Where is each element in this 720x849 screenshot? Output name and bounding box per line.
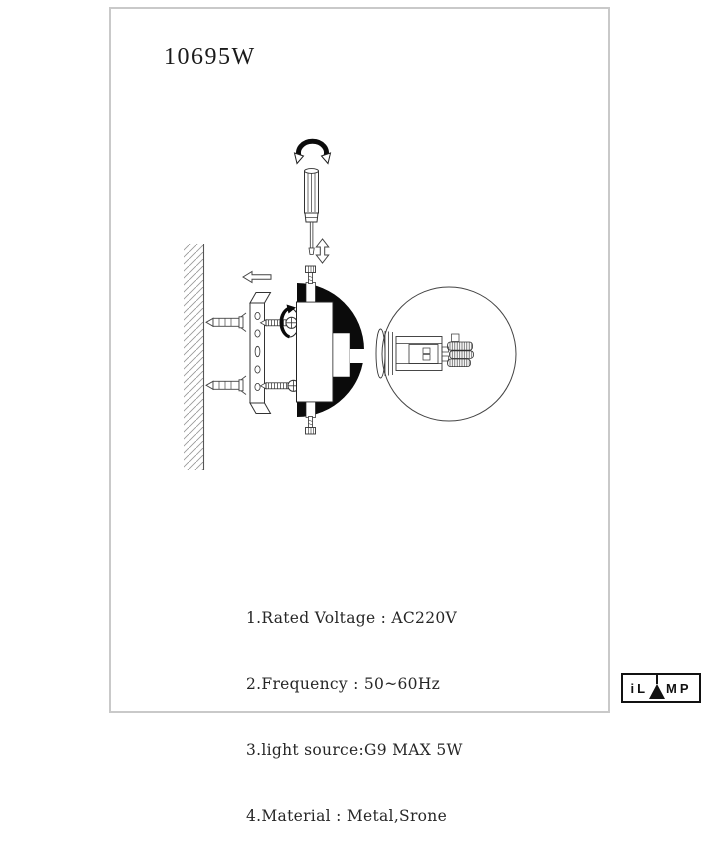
- mounting-bracket: [250, 293, 271, 414]
- wall-section: [184, 244, 204, 470]
- spec-line-frequency: 2.Frequency : 50~60Hz: [246, 673, 463, 695]
- spec-line-lightsource: 3.light source:G9 MAX 5W: [246, 739, 463, 761]
- twist-direction-arrow: [295, 141, 331, 163]
- brand-logo: iL MP: [621, 673, 701, 703]
- spec-line-voltage: 1.Rated Voltage : AC220V: [246, 607, 463, 629]
- up-down-motion-arrow: [316, 239, 328, 263]
- mounting-screw-top: [261, 317, 298, 328]
- screwdriver: [305, 169, 319, 255]
- push-left-arrow: [243, 272, 271, 283]
- wall-anchor-bottom: [206, 376, 246, 395]
- glass-globe: [382, 287, 516, 421]
- mounting-screw-bottom: [261, 380, 300, 391]
- body-fixing-screw-top: [306, 266, 316, 284]
- specifications-list: 1.Rated Voltage : AC220V 2.Frequency : 5…: [246, 563, 463, 849]
- spec-line-material: 4.Material : Metal,Srone: [246, 805, 463, 827]
- wall-anchor-top: [206, 313, 246, 332]
- lamp-body: [297, 283, 365, 418]
- body-fixing-screw-bottom: [306, 417, 316, 435]
- logo-letters-right: MP: [666, 680, 692, 696]
- lamp-cord-icon: [656, 675, 658, 684]
- logo-letters-left: iL: [630, 680, 648, 696]
- lamp-shade-icon: [648, 675, 666, 701]
- lamp-triangle-icon: [649, 684, 665, 699]
